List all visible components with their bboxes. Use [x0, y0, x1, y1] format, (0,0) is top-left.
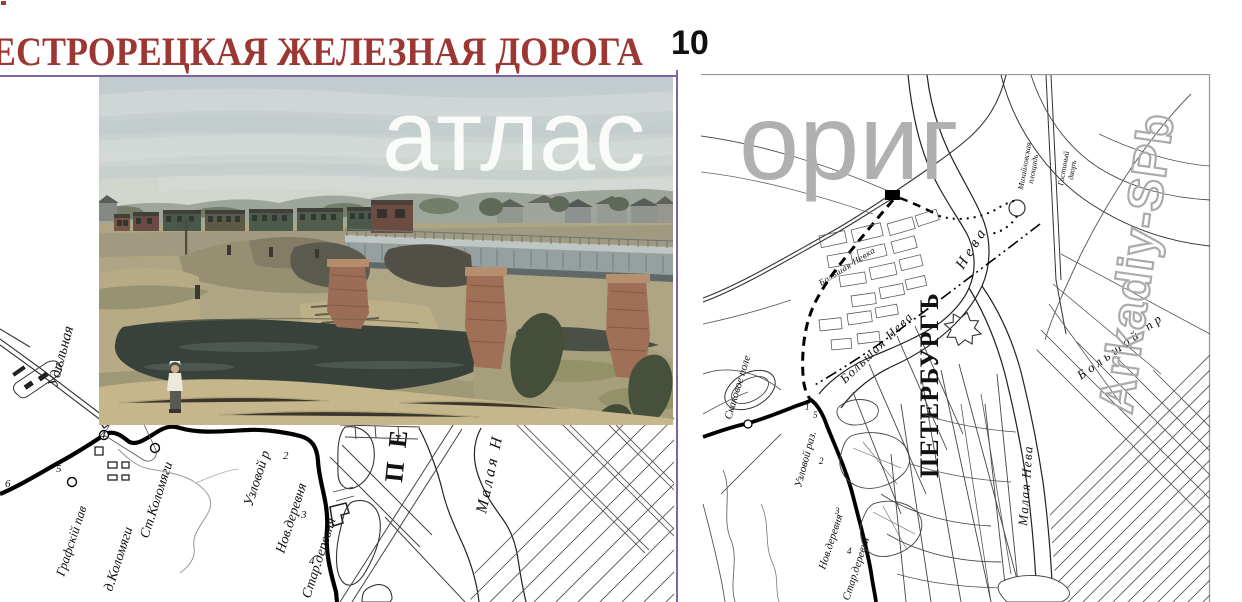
svg-text:4: 4 [309, 555, 315, 567]
svg-text:4: 4 [847, 546, 852, 556]
svg-text:3: 3 [300, 509, 307, 521]
svg-text:ПЕТЕРБУРГЪ: ПЕТЕРБУРГЪ [915, 292, 944, 478]
svg-text:1: 1 [805, 402, 810, 412]
svg-text:2: 2 [819, 456, 824, 466]
svg-text:6: 6 [5, 478, 11, 490]
svg-text:5: 5 [813, 410, 818, 420]
svg-text:5: 5 [56, 463, 62, 475]
svg-text:П Е: П Е [379, 425, 414, 484]
svg-text:4: 4 [100, 429, 106, 441]
svg-text:3: 3 [834, 506, 840, 516]
svg-text:2: 2 [283, 450, 289, 462]
